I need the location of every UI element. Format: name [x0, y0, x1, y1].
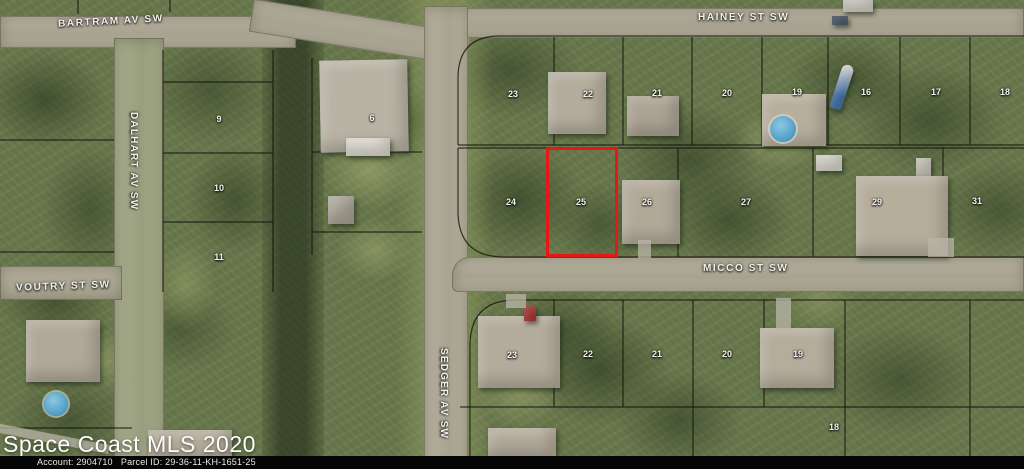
- account-label: Account:: [37, 457, 74, 467]
- lot-number: 21: [652, 88, 662, 98]
- lot-number: 25: [576, 197, 586, 207]
- lot-number: 19: [792, 87, 802, 97]
- aerial-parcel-map[interactable]: BARTRAM AV SW HAINEY ST SW DALHART AV SW…: [0, 0, 1024, 469]
- parcel-id-value: 29-36-11-KH-1651-25: [165, 457, 256, 467]
- lot-number: 9: [216, 114, 221, 124]
- lot-numbers-layer: 2322212019161718242526272931232221201918…: [0, 0, 1024, 469]
- parcel-id-label: Parcel ID:: [121, 457, 163, 467]
- lot-number: 24: [506, 197, 516, 207]
- lot-number: 22: [583, 349, 593, 359]
- lot-number: 29: [872, 197, 882, 207]
- lot-number: 20: [722, 88, 732, 98]
- account-value: 2904710: [76, 457, 112, 467]
- lot-number: 11: [214, 252, 224, 262]
- lot-number: 23: [507, 350, 517, 360]
- lot-number: 17: [931, 87, 941, 97]
- lot-number: 26: [642, 197, 652, 207]
- lot-number: 10: [214, 183, 224, 193]
- lot-number: 22: [583, 89, 593, 99]
- lot-number: 20: [722, 349, 732, 359]
- lot-number: 21: [652, 349, 662, 359]
- lot-number: 6: [369, 113, 374, 123]
- lot-number: 19: [793, 349, 803, 359]
- lot-number: 18: [829, 422, 839, 432]
- footer-bar: Account: 2904710 Parcel ID: 29-36-11-KH-…: [0, 456, 1024, 469]
- lot-number: 16: [861, 87, 871, 97]
- lot-number: 27: [741, 197, 751, 207]
- lot-number: 31: [972, 196, 982, 206]
- lot-number: 23: [508, 89, 518, 99]
- lot-number: 18: [1000, 87, 1010, 97]
- parcel-info-text: Account: 2904710 Parcel ID: 29-36-11-KH-…: [37, 457, 256, 467]
